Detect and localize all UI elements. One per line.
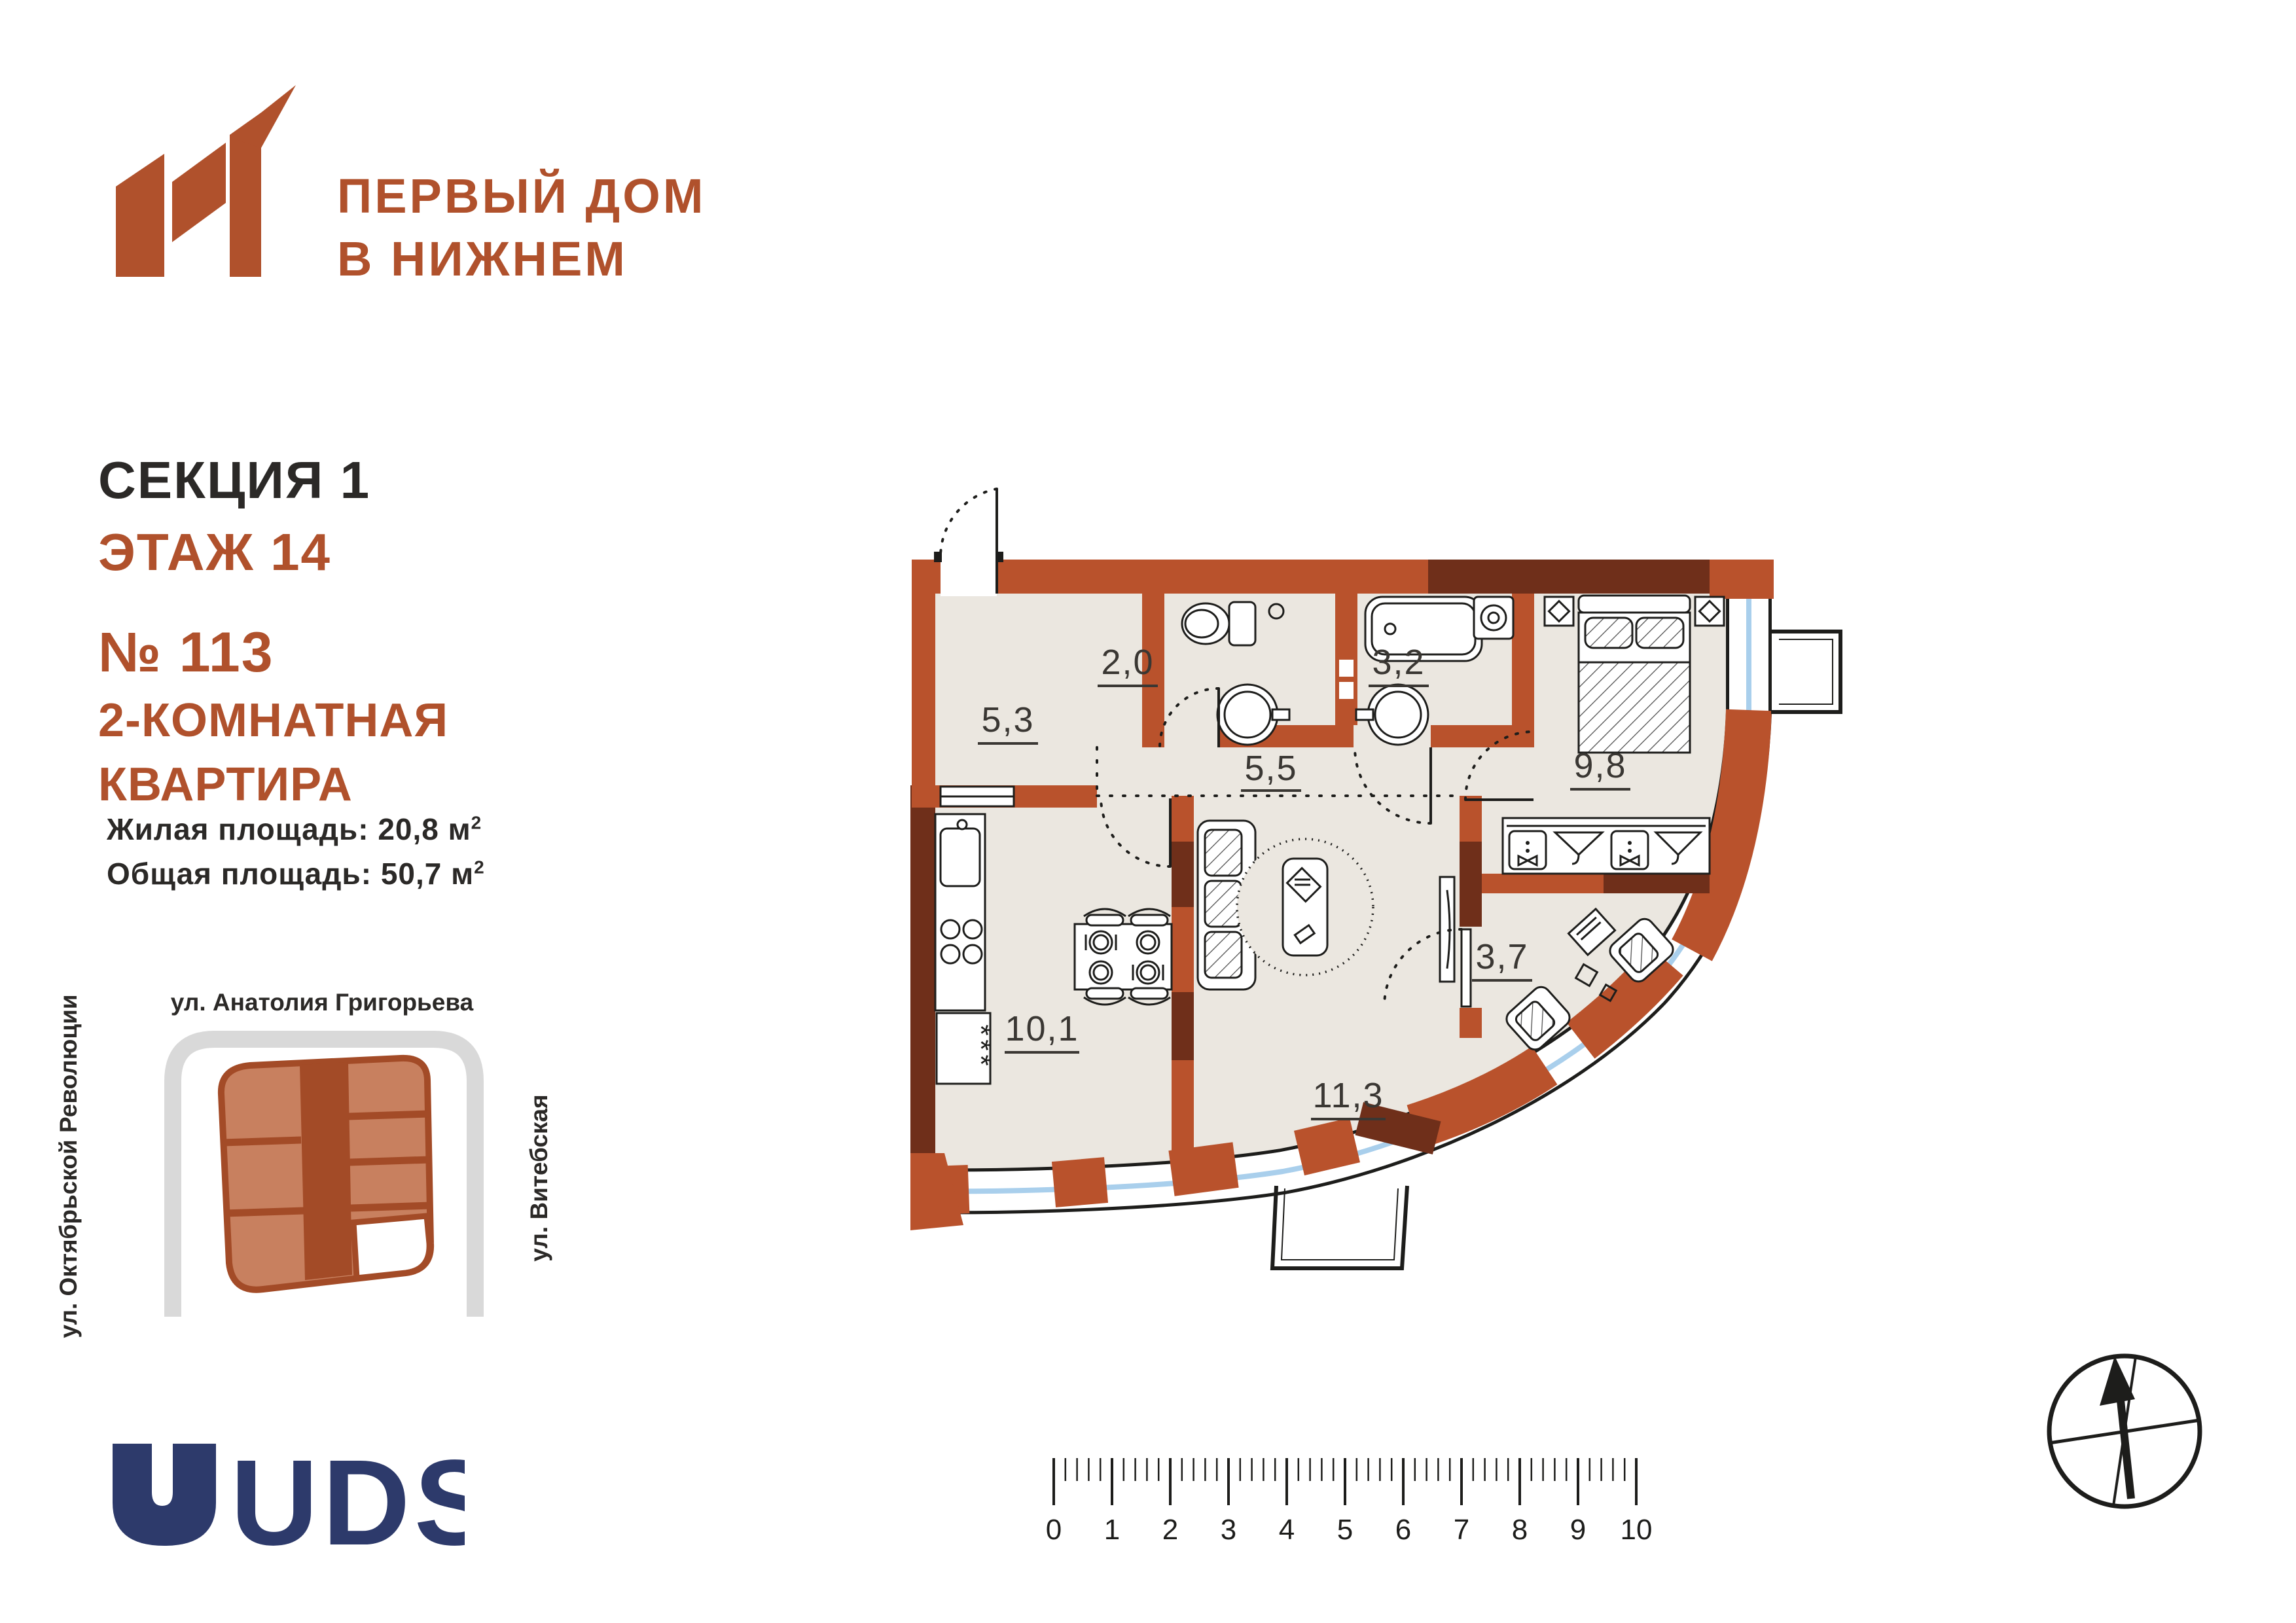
- total-area: Общая площадь: 50,7 м2: [107, 856, 485, 891]
- svg-text:2: 2: [1162, 1514, 1178, 1546]
- svg-text:4: 4: [1279, 1514, 1295, 1546]
- street-right-label: ул. Витебская: [526, 1094, 552, 1261]
- kitchen-counter-icon: [935, 814, 985, 1010]
- room-label-corridor: 5,5: [1244, 749, 1297, 788]
- floor-plan: ***: [890, 452, 1872, 1315]
- svg-text:5: 5: [1337, 1514, 1353, 1546]
- uds-name: UDS: [230, 1435, 465, 1561]
- entrance-door-icon: [941, 489, 997, 556]
- room-label-bedroom: 9,8: [1573, 746, 1626, 785]
- ruler-numbers: 0 1 2 3 4 5 6 7 8 9 10: [1046, 1514, 1653, 1546]
- room-label-kitchen: 10,1: [1005, 1009, 1079, 1048]
- room-label-bathroom: 3,2: [1372, 643, 1425, 682]
- brand-line2: В НИЖНЕМ: [337, 228, 706, 291]
- room-label-cabinet: 3,7: [1475, 937, 1528, 976]
- floor-title: ЭТАЖ 14: [98, 522, 331, 582]
- north-arrow-icon: [2100, 1356, 2135, 1406]
- section-title: СЕКЦИЯ 1: [98, 450, 370, 510]
- svg-text:8: 8: [1512, 1514, 1528, 1546]
- total-area-label: Общая площадь:: [107, 857, 372, 891]
- brand-line1: ПЕРВЫЙ ДОМ: [337, 165, 706, 228]
- uds-logo: UDS: [98, 1430, 465, 1561]
- balcony-right: [1771, 632, 1840, 712]
- room-label-living: 11,3: [1312, 1076, 1384, 1115]
- floor-label: ЭТАЖ: [98, 523, 255, 581]
- living-area-sup: 2: [471, 813, 482, 833]
- apartment-type-line2: КВАРТИРА: [98, 758, 353, 811]
- section-label: СЕКЦИЯ: [98, 451, 324, 509]
- n1-logo-icon: [98, 62, 314, 288]
- building-footprint: [221, 1058, 431, 1290]
- site-plan: ул. Анатолия Григорьева ул. Октябрьской …: [26, 942, 576, 1348]
- svg-text:6: 6: [1395, 1514, 1411, 1546]
- ruler-ticks: [1054, 1458, 1636, 1505]
- total-area-sup: 2: [474, 857, 485, 878]
- room-label-hallway: 5,3: [981, 700, 1034, 740]
- svg-text:***: ***: [965, 1024, 997, 1069]
- room-label-wc: 2,0: [1101, 643, 1154, 682]
- building-core: [300, 1062, 352, 1280]
- living-area-label: Жилая площадь:: [107, 812, 369, 846]
- living-area-unit: м: [448, 812, 471, 846]
- brand-name: ПЕРВЫЙ ДОМ В НИЖНЕМ: [337, 165, 706, 291]
- section-number: 1: [340, 451, 371, 509]
- svg-text:1: 1: [1104, 1514, 1120, 1546]
- svg-text:9: 9: [1570, 1514, 1586, 1546]
- total-area-value: 50,7: [381, 857, 442, 891]
- floor-number: 14: [270, 523, 331, 581]
- balcony-bottom: [1272, 1186, 1407, 1268]
- uds-mark-icon: [113, 1444, 216, 1546]
- living-area-value: 20,8: [378, 812, 439, 846]
- scale-ruler: 0 1 2 3 4 5 6 7 8 9 10: [1041, 1433, 1656, 1551]
- street-left-label: ул. Октябрьской Революции: [55, 994, 82, 1338]
- apartment-number-sign: №: [98, 621, 162, 684]
- current-section-highlight: [353, 1216, 429, 1278]
- apartment-type-line1: 2-КОМНАТНАЯ: [98, 694, 448, 747]
- total-area-unit: м: [451, 857, 474, 891]
- north-compass-icon: [2036, 1342, 2219, 1525]
- flyer-page: ПЕРВЫЙ ДОМ В НИЖНЕМ СЕКЦИЯ 1 ЭТАЖ 14 № 1…: [0, 0, 2296, 1623]
- svg-text:0: 0: [1046, 1514, 1062, 1546]
- living-area: Жилая площадь: 20,8 м2: [107, 811, 482, 847]
- apartment-number: № 113: [98, 620, 274, 685]
- street-top-label: ул. Анатолия Григорьева: [171, 989, 474, 1016]
- svg-text:3: 3: [1221, 1514, 1236, 1546]
- svg-text:7: 7: [1454, 1514, 1469, 1546]
- svg-text:10: 10: [1621, 1514, 1653, 1546]
- apartment-number-value: 113: [179, 621, 274, 684]
